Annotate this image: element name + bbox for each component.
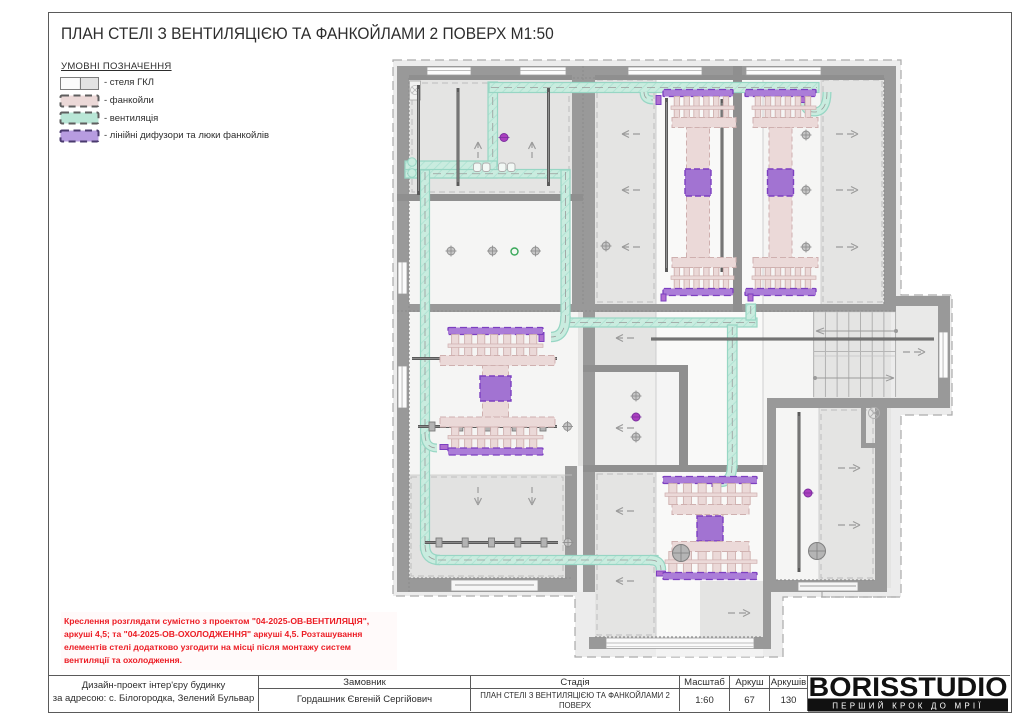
svg-text:ПЕРШИЙ КРОК ДО МРІЇ: ПЕРШИЙ КРОК ДО МРІЇ [832,702,984,711]
svg-text:BORISSTUDIO: BORISSTUDIO [809,674,1008,702]
